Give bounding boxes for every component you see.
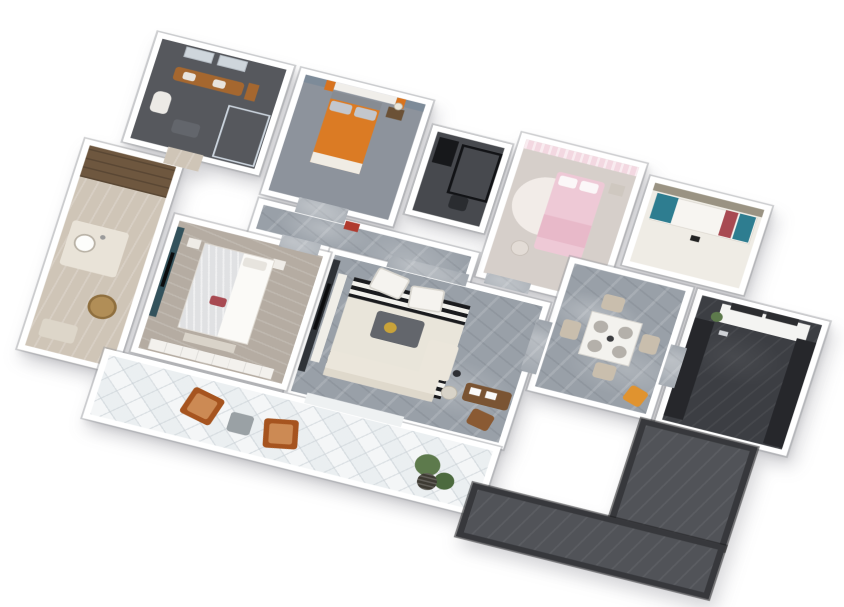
- toilet: [149, 90, 173, 115]
- dining-table: [578, 311, 643, 367]
- plate-4: [610, 344, 628, 359]
- plate-1: [592, 319, 610, 334]
- desk-paper-1: [469, 387, 482, 396]
- pink-curtains: [524, 139, 640, 176]
- balcony-armchair-2: [262, 418, 299, 450]
- sink-basin: [71, 232, 98, 255]
- pillow-1: [329, 100, 353, 115]
- glass-shower: [212, 105, 271, 167]
- desk-chair: [465, 408, 495, 433]
- plate-2: [617, 325, 635, 340]
- bath-mat: [170, 119, 201, 139]
- dining-chair-bottom: [591, 362, 617, 382]
- pink-bed-pillow-2: [579, 180, 600, 194]
- armchair-2-cushion: [268, 423, 293, 445]
- orange-curtain-left: [324, 80, 336, 92]
- center-cup: [606, 335, 615, 343]
- yellow-accent-chair: [622, 384, 650, 408]
- canopy-bed: [177, 243, 275, 345]
- vanity-sink-2: [212, 79, 227, 89]
- mirror-1: [183, 46, 215, 63]
- writing-desk: [461, 382, 513, 411]
- nightstand-left: [186, 237, 201, 249]
- dining-chair-right: [638, 333, 661, 355]
- apartment-plan: [0, 10, 844, 607]
- red-artwork: [343, 221, 360, 233]
- pillow-2: [353, 106, 377, 121]
- dressing-cabinets: [80, 145, 176, 198]
- nook-chair: [447, 194, 469, 212]
- plate-3: [586, 338, 604, 353]
- orange-towel: [244, 83, 260, 102]
- phone: [690, 235, 700, 242]
- dining-chair-left: [559, 318, 582, 340]
- floor-lamp: [452, 369, 462, 378]
- bedroom-tv: [160, 252, 175, 287]
- rattan-stool: [84, 291, 120, 322]
- pink-bed-pillow-1: [558, 175, 579, 189]
- counter-right: [763, 338, 816, 448]
- desk-paper-2: [485, 391, 498, 400]
- pink-stool: [509, 238, 531, 257]
- wood-vanity: [172, 66, 245, 96]
- bed-pillow: [242, 257, 268, 272]
- dressing-counter: [59, 220, 130, 278]
- woven-basket: [415, 471, 440, 492]
- floorplan-canvas: [0, 0, 844, 607]
- sheer-canopy-drape: [178, 244, 244, 337]
- balcony-cube-table: [226, 411, 255, 436]
- dining-chair-top: [600, 293, 626, 313]
- pink-nightstand: [608, 183, 625, 197]
- vanity-sink-1: [182, 71, 197, 81]
- kitchen-utensils: [718, 330, 728, 337]
- floor-mat: [38, 318, 79, 345]
- faucet: [99, 235, 106, 241]
- mirror-2: [217, 55, 249, 72]
- balcony-armchair-1: [179, 386, 226, 426]
- armchair-1-cushion: [186, 392, 218, 419]
- gold-tray: [382, 321, 398, 334]
- pink-blanket: [537, 214, 592, 248]
